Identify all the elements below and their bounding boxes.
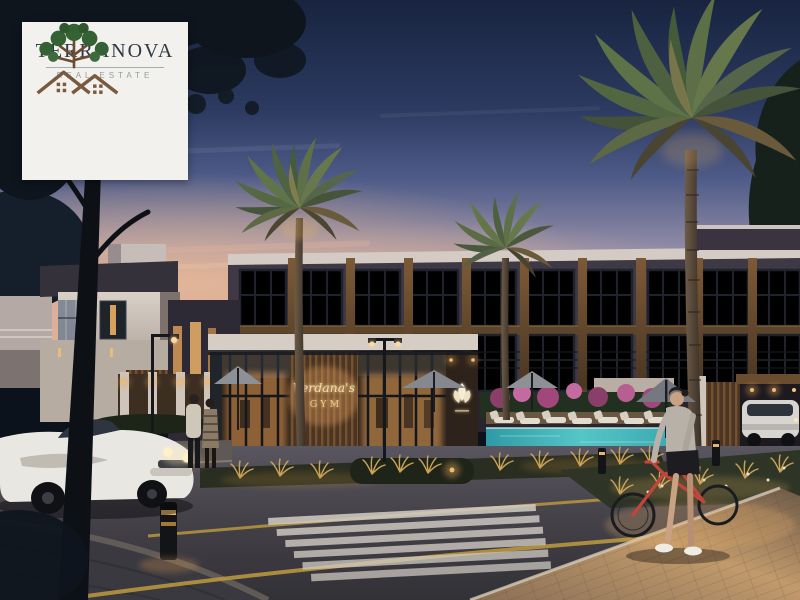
rooftop-volume bbox=[688, 228, 800, 250]
bollard bbox=[712, 440, 720, 466]
carport bbox=[694, 374, 800, 456]
render-image: Verdana's GYM bbox=[0, 0, 800, 600]
logo-house-roofs bbox=[38, 72, 118, 93]
terranova-logo-card: TERRANOVA REAL ESTATE bbox=[22, 22, 188, 180]
gym-glass-right bbox=[358, 352, 446, 462]
gym-roof bbox=[208, 334, 478, 352]
gym-glass-left bbox=[222, 352, 290, 462]
terranova-tree-icon bbox=[22, 22, 126, 100]
gym-sign-word: GYM bbox=[310, 399, 342, 410]
villa-roof bbox=[40, 261, 178, 297]
bollard bbox=[598, 448, 606, 474]
villa-window bbox=[100, 301, 126, 339]
spandrel-band bbox=[228, 326, 800, 335]
median-island bbox=[350, 455, 474, 484]
